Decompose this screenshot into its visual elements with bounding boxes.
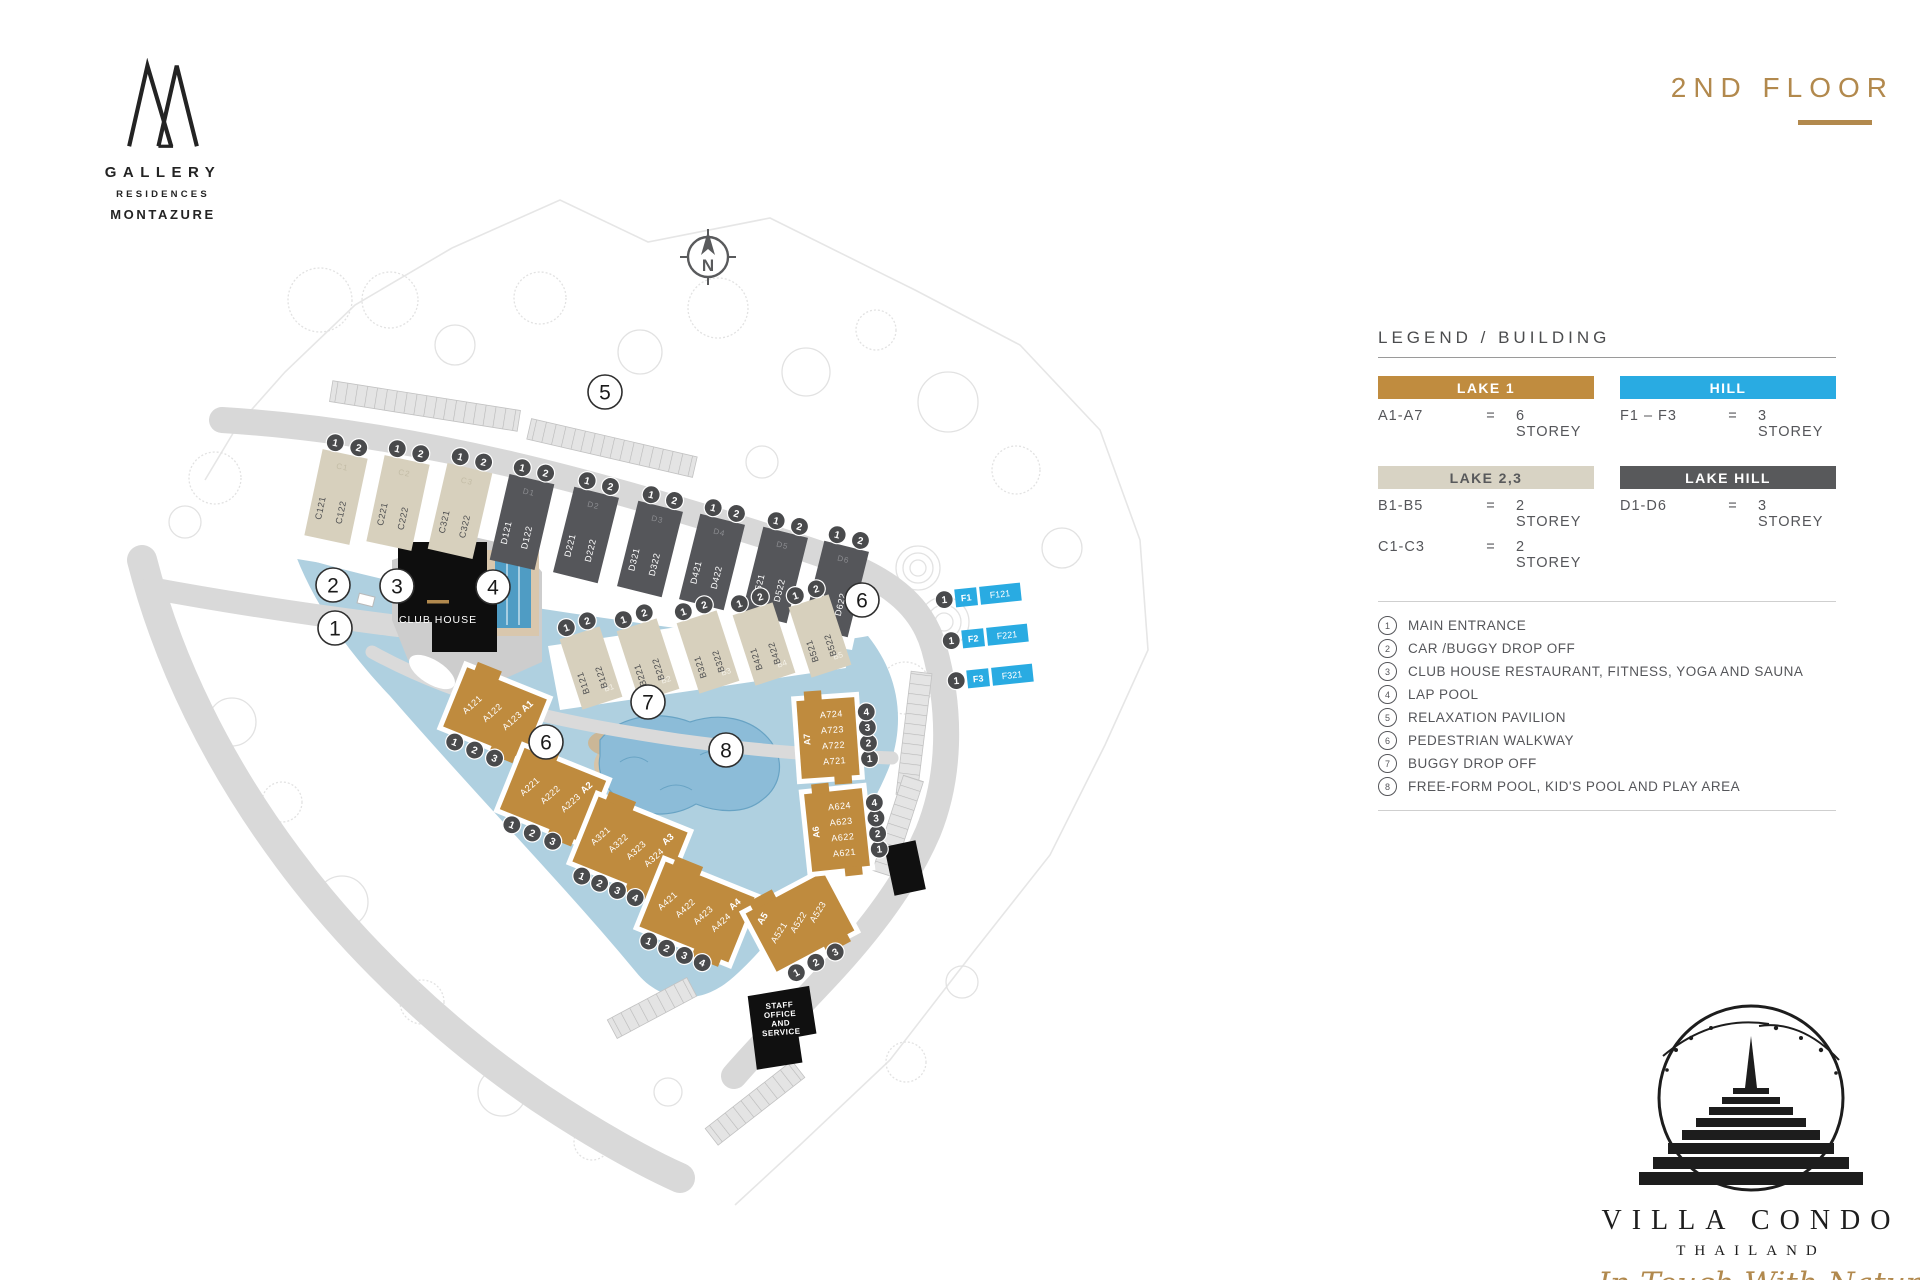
compass-n-label: N (702, 256, 714, 275)
legend-title: LEGEND / BUILDING (1378, 328, 1836, 358)
unit-label: A721 (823, 755, 847, 767)
equals-sign: = (1466, 539, 1516, 571)
stupa-pyramid (1639, 1036, 1863, 1185)
building-label: F1 (960, 592, 972, 603)
category-bar: LAKE 2,3 (1378, 466, 1594, 489)
building-range: F1 – F3 (1620, 408, 1708, 440)
note-label: CLUB HOUSE RESTAURANT, FITNESS, YOGA AND… (1408, 664, 1803, 679)
map-marker-6: 6 (845, 583, 879, 617)
map-marker-number: 8 (720, 740, 732, 763)
unit-label: A722 (822, 740, 846, 752)
storey-row: B1-B5 = 2 STOREY (1378, 498, 1594, 530)
map-marker-2: 2 (316, 568, 350, 602)
legend-category-hill: HILL F1 – F3 = 3 STOREY (1620, 376, 1836, 440)
note-item: 1 MAIN ENTRANCE (1378, 614, 1836, 637)
storey-value: 2 STOREY (1516, 498, 1594, 530)
floor-header: 2ND FLOOR (1671, 72, 1894, 130)
note-label: PEDESTRIAN WALKWAY (1408, 733, 1574, 748)
club-house-label: CLUB HOUSE (399, 614, 477, 626)
building-range: A1-A7 (1378, 408, 1466, 440)
compass: N (680, 229, 736, 285)
note-number: 4 (1378, 685, 1397, 704)
note-item: 5 RELAXATION PAVILION (1378, 706, 1836, 729)
note-label: RELAXATION PAVILION (1408, 710, 1566, 725)
storey-row: D1-D6 = 3 STOREY (1620, 498, 1836, 530)
note-label: MAIN ENTRANCE (1408, 618, 1526, 633)
storey-row: F1 – F3 = 3 STOREY (1620, 408, 1836, 440)
note-number: 8 (1378, 777, 1397, 796)
unit-label: F121 (989, 588, 1010, 600)
map-marker-4: 4 (476, 570, 510, 604)
building-label: A6 (811, 826, 822, 838)
map-marker-5: 5 (588, 375, 622, 409)
building-f2: F2F2211 (941, 624, 1028, 651)
note-label: BUGGY DROP OFF (1408, 756, 1537, 771)
map-marker-number: 3 (391, 576, 403, 599)
legend-panel: LEGEND / BUILDING LAKE 1 A1-A7 = 6 STORE… (1378, 328, 1836, 811)
note-item: 4 LAP POOL (1378, 683, 1836, 706)
equals-sign: = (1466, 408, 1516, 440)
thailand-wordmark: THAILAND (1598, 1243, 1904, 1260)
map-marker-number: 1 (329, 618, 341, 641)
note-label: FREE-FORM POOL, KID'S POOL AND PLAY AREA (1408, 779, 1740, 794)
note-item: 7 BUGGY DROP OFF (1378, 752, 1836, 775)
montazure-m-icon (120, 58, 206, 154)
map-marker-number: 2 (327, 575, 339, 598)
page: CLUB HOUSE STAFF OFFICE AND SERVICE N C1… (0, 0, 1920, 1280)
brand-gallery: GALLERY (88, 164, 238, 181)
map-marker-number: 5 (599, 382, 611, 405)
note-label: LAP POOL (1408, 687, 1479, 702)
map-marker-8: 8 (709, 733, 743, 767)
note-item: 2 CAR /BUGGY DROP OFF (1378, 637, 1836, 660)
note-item: 6 PEDESTRIAN WALKWAY (1378, 729, 1836, 752)
storey-row: C1-C3 = 2 STOREY (1378, 539, 1594, 571)
building-f3: F3F3211 (946, 664, 1033, 691)
villa-condo-logo: VILLA CONDO THAILAND In Touch With Natur… (1598, 998, 1904, 1280)
map-marker-7: 7 (631, 685, 665, 719)
map-marker-6: 6 (529, 725, 563, 759)
tagline-script: In Touch With Nature (1598, 1266, 1904, 1280)
note-number: 2 (1378, 639, 1397, 658)
page-title: 2ND FLOOR (1671, 72, 1894, 104)
equals-sign: = (1708, 498, 1758, 530)
unit-label: A723 (821, 724, 845, 736)
brand-montazure: MONTAZURE (88, 207, 238, 222)
stupa-circle-icon (1598, 998, 1904, 1198)
brand-residences: RESIDENCES (88, 189, 238, 200)
legend-category-lakehill: LAKE HILL D1-D6 = 3 STOREY (1620, 466, 1836, 571)
note-number: 6 (1378, 731, 1397, 750)
storey-value: 2 STOREY (1516, 539, 1594, 571)
equals-sign: = (1466, 498, 1516, 530)
villa-condo-wordmark: VILLA CONDO (1598, 1205, 1904, 1237)
building-range: B1-B5 (1378, 498, 1466, 530)
category-bar: HILL (1620, 376, 1836, 399)
brand-logo: GALLERY RESIDENCES MONTAZURE (88, 58, 238, 222)
map-marker-1: 1 (318, 611, 352, 645)
gold-underline (1798, 120, 1872, 125)
staff-building: STAFF OFFICE AND SERVICE (747, 986, 818, 1070)
map-marker-number: 7 (642, 692, 654, 715)
note-number: 1 (1378, 616, 1397, 635)
building-label: F2 (967, 633, 979, 644)
building-label: F3 (972, 673, 984, 684)
legend-category-lake1: LAKE 1 A1-A7 = 6 STOREY (1378, 376, 1594, 440)
equals-sign: = (1708, 408, 1758, 440)
gold-dash (427, 600, 449, 604)
storey-value: 3 STOREY (1758, 408, 1836, 440)
map-marker-number: 4 (487, 577, 499, 600)
building-label: A7 (802, 733, 813, 745)
map-marker-3: 3 (380, 569, 414, 603)
building-range: C1-C3 (1378, 539, 1466, 571)
note-item: 3 CLUB HOUSE RESTAURANT, FITNESS, YOGA A… (1378, 660, 1836, 683)
storey-row: A1-A7 = 6 STOREY (1378, 408, 1594, 440)
legend-categories: LAKE 1 A1-A7 = 6 STOREY HILL F1 – F3 = 3… (1378, 376, 1836, 571)
unit-label: A724 (820, 709, 844, 721)
note-label: CAR /BUGGY DROP OFF (1408, 641, 1575, 656)
storey-value: 3 STOREY (1758, 498, 1836, 530)
building-range: D1-D6 (1620, 498, 1708, 530)
building-f1: F1F1211 (934, 583, 1021, 610)
category-bar: LAKE HILL (1620, 466, 1836, 489)
note-number: 7 (1378, 754, 1397, 773)
note-item: 8 FREE-FORM POOL, KID'S POOL AND PLAY AR… (1378, 775, 1836, 798)
unit-label: F321 (1001, 669, 1022, 681)
unit-label: F221 (996, 629, 1017, 641)
note-number: 3 (1378, 662, 1397, 681)
legend-category-lake23: LAKE 2,3 B1-B5 = 2 STOREY C1-C3 = 2 STOR… (1378, 466, 1594, 571)
category-bar: LAKE 1 (1378, 376, 1594, 399)
map-marker-number: 6 (856, 590, 868, 613)
legend-notes: 1 MAIN ENTRANCE 2 CAR /BUGGY DROP OFF 3 … (1378, 601, 1836, 811)
map-marker-number: 6 (540, 732, 552, 755)
note-number: 5 (1378, 708, 1397, 727)
storey-value: 6 STOREY (1516, 408, 1594, 440)
